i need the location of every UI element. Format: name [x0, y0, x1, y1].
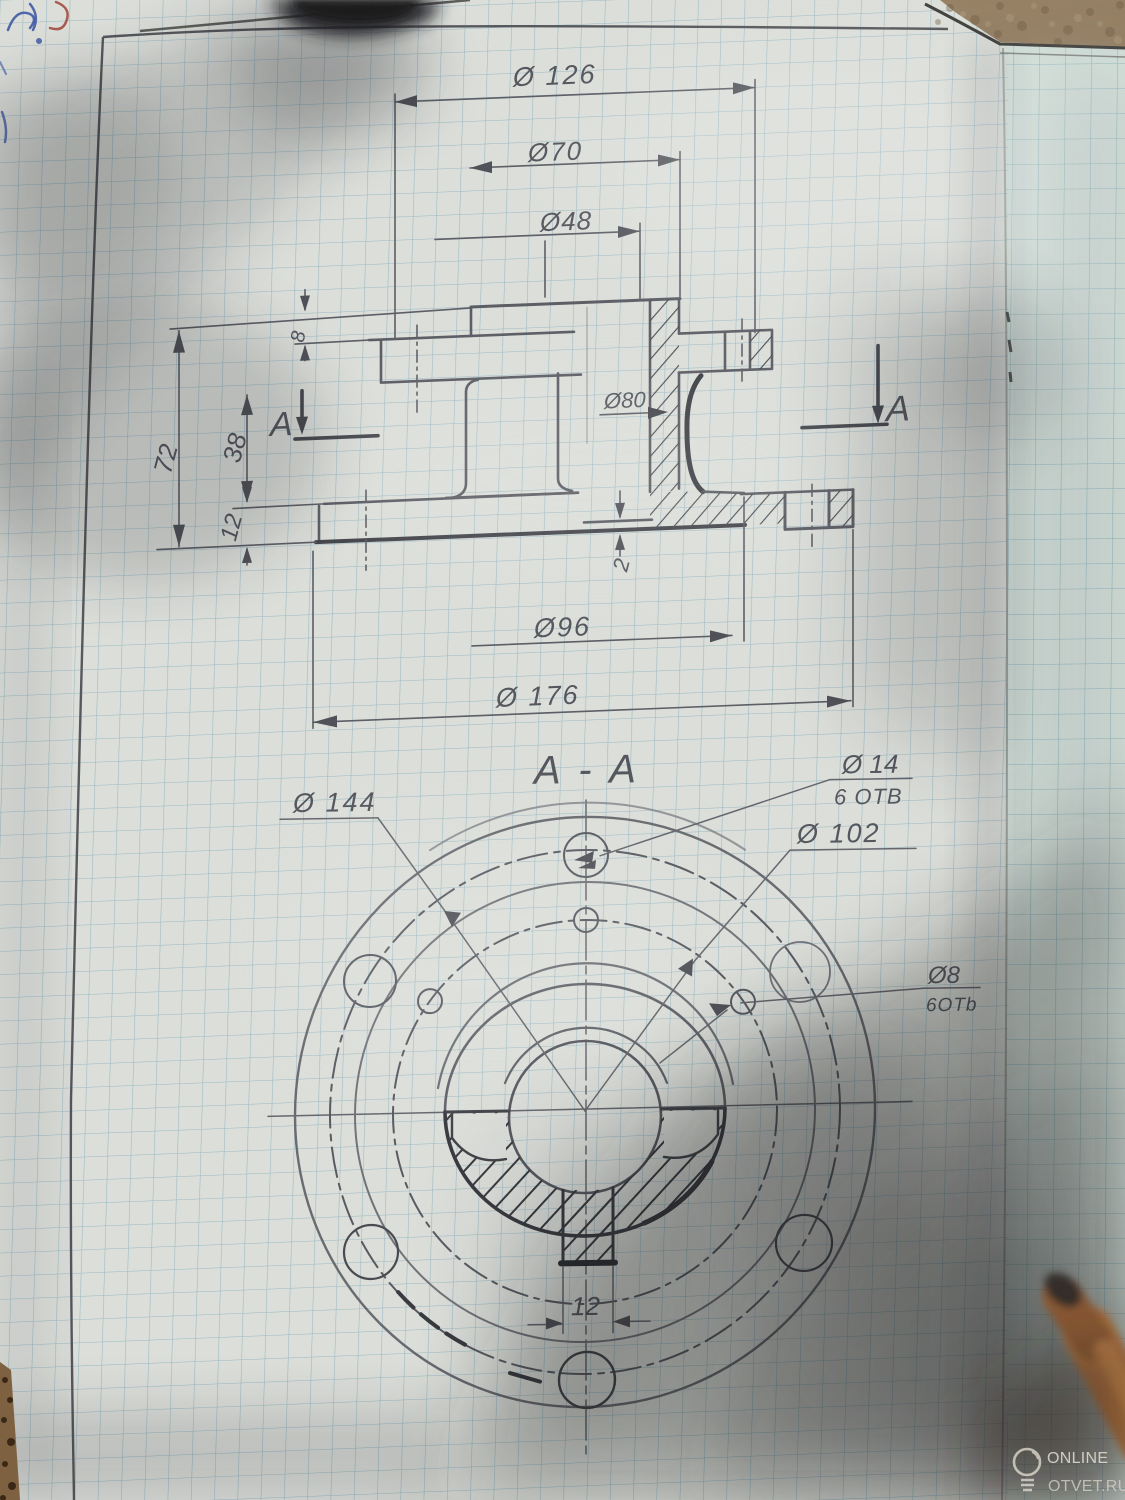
svg-text:OTVET.RU: OTVET.RU	[1048, 1478, 1125, 1495]
svg-text:ONLINE: ONLINE	[1047, 1450, 1108, 1467]
